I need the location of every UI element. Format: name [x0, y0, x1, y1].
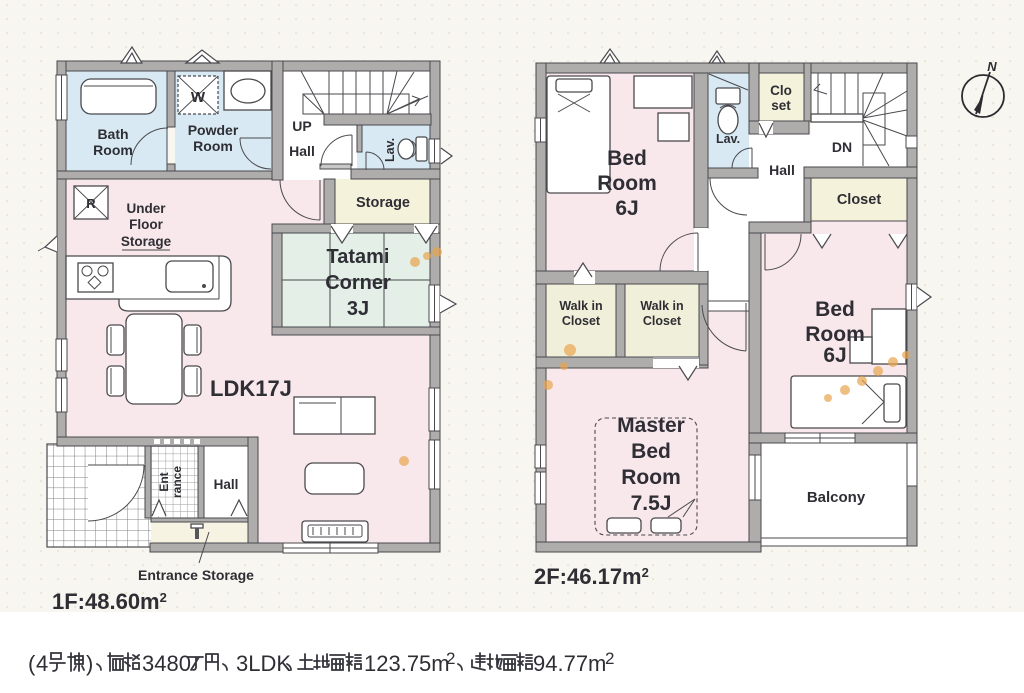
svg-text:Hall: Hall — [769, 162, 795, 178]
svg-text:Walk in: Walk in — [640, 299, 683, 313]
svg-text:Floor: Floor — [129, 217, 163, 232]
svg-text:2F:46.17m2: 2F:46.17m2 — [534, 564, 649, 589]
svg-text:Balcony: Balcony — [807, 489, 866, 506]
svg-text:Bath: Bath — [97, 126, 128, 142]
svg-text:2: 2 — [605, 649, 614, 668]
svg-text:Room: Room — [805, 323, 865, 346]
svg-text:Powder: Powder — [188, 122, 239, 138]
svg-text:3LDK: 3LDK — [236, 651, 291, 676]
svg-text:Entrance Storage: Entrance Storage — [138, 567, 254, 583]
svg-text:W: W — [191, 89, 206, 106]
svg-text:): ) — [86, 651, 93, 676]
svg-text:Storage: Storage — [121, 234, 172, 249]
svg-text:Walk in: Walk in — [559, 299, 602, 313]
svg-text:(: ( — [28, 651, 36, 676]
svg-text:Hall: Hall — [214, 477, 239, 492]
svg-text:3480: 3480 — [142, 651, 191, 676]
svg-text:Lav.: Lav. — [716, 132, 740, 146]
svg-text:Bed: Bed — [607, 147, 647, 170]
svg-text:N: N — [987, 59, 997, 74]
svg-text:set: set — [771, 98, 791, 113]
svg-text:1F:48.60m2: 1F:48.60m2 — [52, 589, 167, 614]
svg-text:2: 2 — [446, 649, 455, 668]
svg-text:Lav.: Lav. — [383, 138, 397, 162]
svg-text:Bed: Bed — [631, 440, 671, 463]
svg-text:Bed: Bed — [815, 298, 855, 321]
svg-text:Master: Master — [617, 414, 685, 437]
svg-text:3J: 3J — [347, 298, 369, 320]
svg-text:rance: rance — [170, 466, 184, 498]
svg-text:4: 4 — [36, 651, 48, 676]
svg-text:Room: Room — [93, 142, 133, 158]
svg-text:Closet: Closet — [643, 314, 682, 328]
svg-text:Closet: Closet — [837, 192, 881, 208]
svg-text:Storage: Storage — [356, 195, 410, 211]
svg-text:7.5J: 7.5J — [631, 492, 672, 515]
svg-text:Corner: Corner — [325, 272, 391, 294]
svg-text:6J: 6J — [823, 344, 846, 367]
svg-text:UP: UP — [292, 118, 311, 134]
svg-text:Ent: Ent — [157, 472, 171, 491]
svg-text:DN: DN — [832, 139, 852, 155]
svg-text:94.77m: 94.77m — [533, 651, 606, 676]
svg-text:6J: 6J — [615, 197, 638, 220]
svg-text:Room: Room — [597, 172, 657, 195]
svg-text:R: R — [86, 196, 96, 211]
svg-text:Room: Room — [621, 466, 681, 489]
svg-text:Closet: Closet — [562, 314, 601, 328]
svg-text:Room: Room — [193, 138, 233, 154]
svg-text:Tatami: Tatami — [327, 246, 390, 268]
svg-text:Clo: Clo — [770, 83, 792, 98]
svg-text:123.75m: 123.75m — [364, 651, 450, 676]
svg-text:Under: Under — [126, 201, 166, 216]
svg-text:Hall: Hall — [289, 143, 315, 159]
svg-text:LDK17J: LDK17J — [210, 376, 292, 401]
